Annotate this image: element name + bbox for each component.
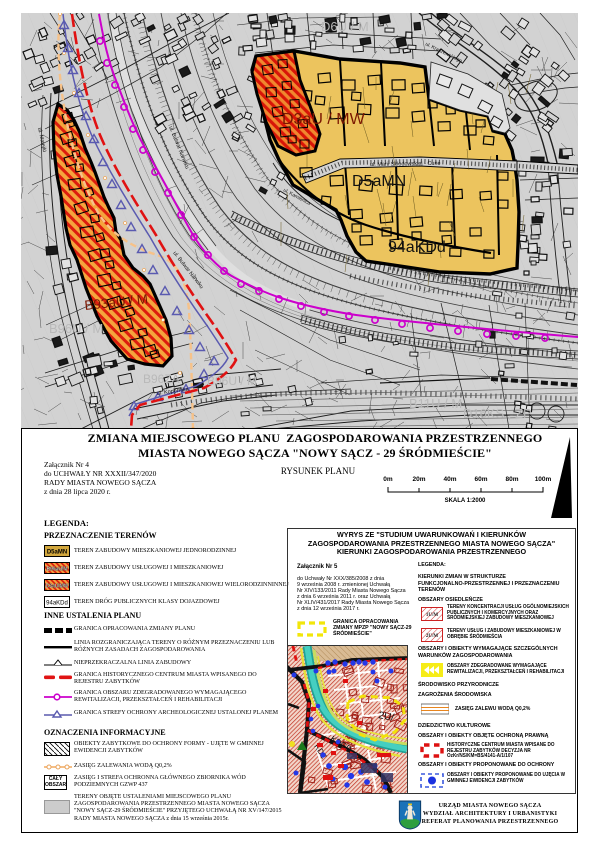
svg-text:B96aU/M: B96aU/M [46, 567, 67, 573]
svg-text:B96U / M: B96U / M [207, 374, 257, 388]
svg-text:1U/M: 1U/M [426, 613, 439, 618]
svg-text:D5aMN: D5aMN [47, 550, 67, 556]
svg-text:D3aU / MW: D3aU / MW [282, 111, 366, 128]
svg-text:80m: 80m [505, 476, 518, 483]
svg-text:D6U / M: D6U / M [321, 19, 369, 34]
svg-text:D3aU/MW: D3aU/MW [45, 584, 68, 590]
svg-text:D5aMN: D5aMN [352, 173, 406, 190]
svg-text:B11U / M: B11U / M [409, 396, 462, 411]
svg-text:2U/M: 2U/M [426, 634, 439, 639]
svg-text:ul. Marii Skłodowskiej - Curie: ul. Marii Skłodowskiej - Curie [370, 161, 441, 168]
svg-text:B96U / M: B96U / M [49, 321, 103, 336]
svg-text:D16KS , ZP: D16KS , ZP [463, 406, 532, 421]
svg-text:B96ZA: B96ZA [143, 372, 180, 386]
svg-text:0m: 0m [383, 476, 393, 483]
svg-text:20m: 20m [412, 476, 425, 483]
svg-text:94aKDd: 94aKDd [388, 239, 446, 256]
svg-text:40m: 40m [443, 476, 456, 483]
svg-text:60m: 60m [474, 476, 487, 483]
svg-text:94aKDd: 94aKDd [46, 601, 68, 607]
svg-text:SKALA 1:2000: SKALA 1:2000 [445, 498, 486, 504]
